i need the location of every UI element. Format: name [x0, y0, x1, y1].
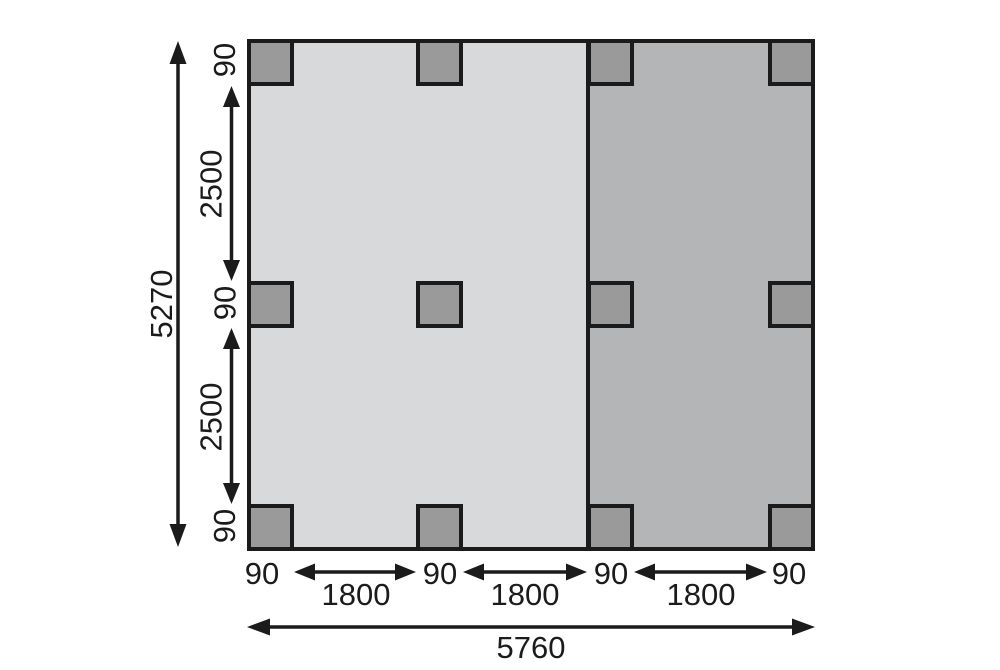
- svg-text:2500: 2500: [194, 383, 229, 452]
- svg-text:5270: 5270: [144, 270, 179, 339]
- svg-text:90: 90: [423, 556, 457, 591]
- svg-text:5760: 5760: [497, 630, 566, 665]
- svg-text:90: 90: [207, 509, 242, 543]
- svg-text:90: 90: [208, 286, 243, 320]
- svg-text:90: 90: [207, 43, 242, 77]
- svg-text:2500: 2500: [194, 150, 229, 219]
- svg-text:90: 90: [772, 556, 806, 591]
- svg-text:90: 90: [594, 556, 628, 591]
- svg-text:1800: 1800: [322, 577, 391, 612]
- svg-text:1800: 1800: [491, 577, 560, 612]
- svg-text:1800: 1800: [667, 577, 736, 612]
- svg-text:90: 90: [245, 556, 279, 591]
